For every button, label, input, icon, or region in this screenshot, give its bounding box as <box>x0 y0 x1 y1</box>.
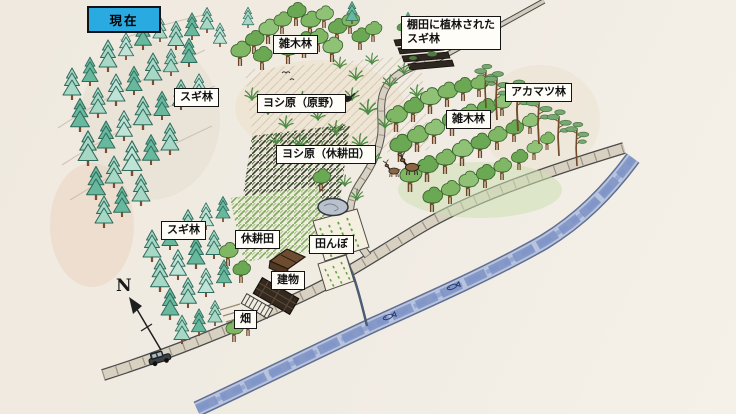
status-badge-current: 現在 <box>87 6 161 33</box>
label-building: 建物 <box>271 271 305 290</box>
deer-icon <box>383 160 400 177</box>
compass-north-label: N <box>116 276 132 296</box>
label-terraced-cedar-line2: スギ林 <box>407 32 495 46</box>
pond <box>318 199 348 216</box>
north-arrow-icon <box>129 297 161 350</box>
label-crop-field: 畑 <box>234 310 257 329</box>
label-rice-paddy: 田んぼ <box>309 235 354 254</box>
label-cedar-forest-lower: スギ林 <box>161 221 206 240</box>
label-red-pine-forest: アカマツ林 <box>505 83 572 102</box>
label-cedar-forest-upper: スギ林 <box>174 88 219 107</box>
cedar-forest-lower-left <box>143 196 232 344</box>
label-mixed-woods-top: 雑木林 <box>273 35 318 54</box>
label-reed-wilderness: ヨシ原（原野） <box>257 94 346 113</box>
label-fallow-paddy: 休耕田 <box>235 230 280 249</box>
label-reed-fallow-field: ヨシ原（休耕田） <box>276 145 376 164</box>
label-terraced-cedar-line1: 棚田に植林された <box>407 18 495 32</box>
hand-drawn-landscape-map: 現在 N 雑木林 スギ林 ヨシ原（原野） 棚田に植林された スギ林 アカマツ林 … <box>0 0 736 414</box>
map-illustration <box>0 0 736 414</box>
label-terraced-cedar: 棚田に植林された スギ林 <box>401 16 501 50</box>
label-mixed-woods-right: 雑木林 <box>446 110 491 129</box>
